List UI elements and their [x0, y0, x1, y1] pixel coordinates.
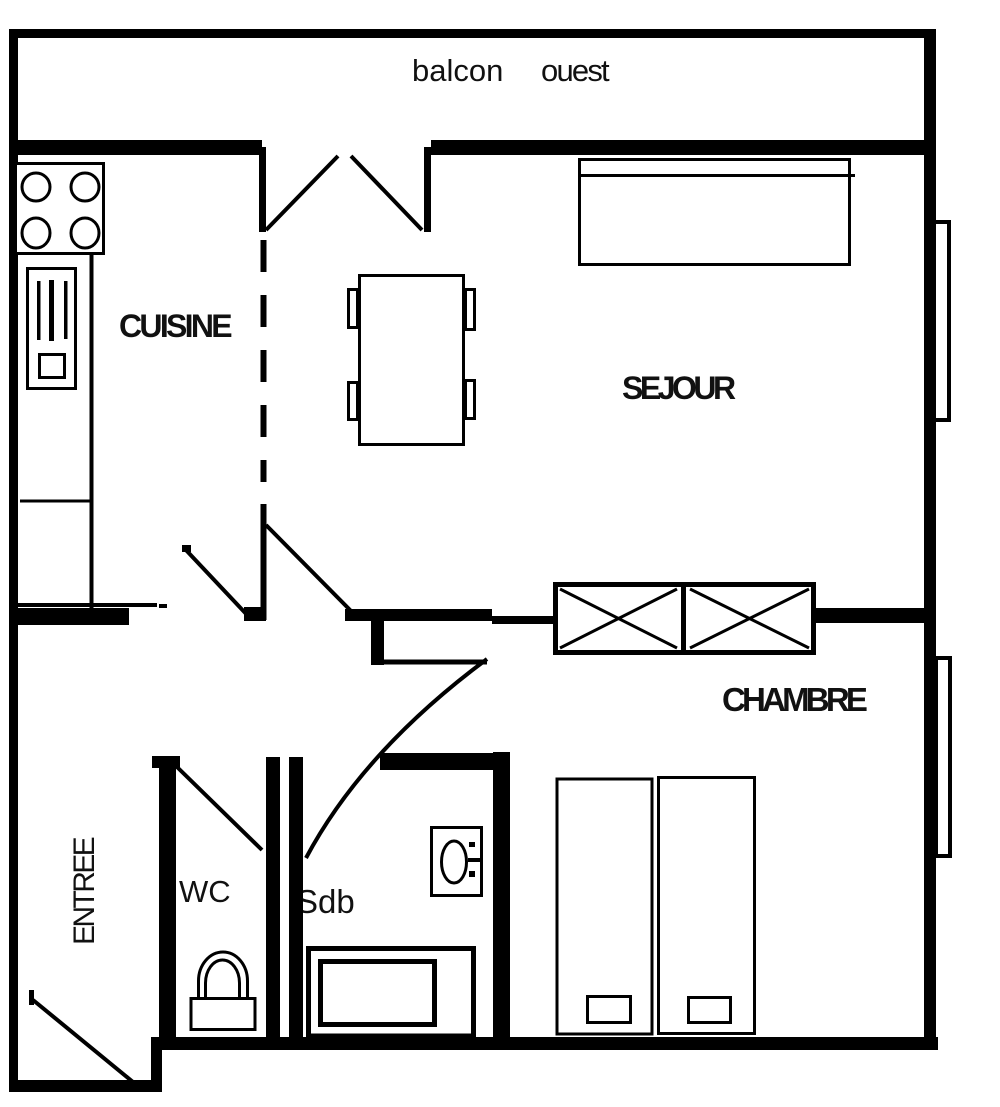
svg-text:CHAMBRE: CHAMBRE	[722, 681, 867, 718]
svg-text:CUISINE: CUISINE	[119, 308, 232, 344]
svg-text:ENTREE: ENTREE	[68, 837, 101, 945]
svg-text:WC: WC	[179, 874, 231, 909]
svg-text:balcon: balcon	[412, 53, 503, 88]
svg-text:SEJOUR: SEJOUR	[622, 370, 736, 406]
svg-text:ouest: ouest	[541, 53, 610, 88]
svg-text:Sdb: Sdb	[296, 883, 355, 920]
